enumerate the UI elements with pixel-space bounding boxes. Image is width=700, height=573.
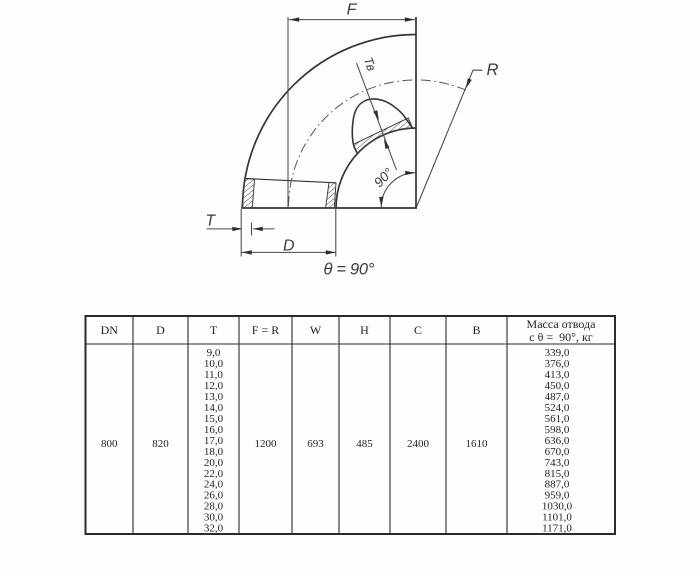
svg-text:T: T: [206, 213, 217, 230]
svg-text:D: D: [283, 238, 295, 255]
svg-text:1610: 1610: [466, 438, 489, 450]
svg-text:800: 800: [101, 438, 118, 450]
svg-text:θ = 90°: θ = 90°: [324, 261, 375, 279]
svg-text:C: C: [414, 323, 422, 337]
svg-text:485: 485: [356, 438, 373, 450]
svg-text:693: 693: [307, 438, 324, 450]
svg-text:2400: 2400: [407, 438, 430, 450]
svg-text:D: D: [156, 323, 165, 337]
svg-text:820: 820: [152, 438, 169, 450]
svg-text:F = R: F = R: [252, 323, 279, 337]
svg-text:Масса отвода: Масса отвода: [527, 317, 597, 331]
svg-text:DN: DN: [101, 323, 119, 337]
svg-text:1200: 1200: [255, 438, 278, 450]
svg-text:B: B: [472, 323, 480, 337]
svg-text:W: W: [310, 323, 322, 337]
svg-text:1171,0: 1171,0: [542, 523, 572, 535]
svg-text:с θ = 90°, кг: с θ = 90°, кг: [529, 330, 592, 344]
svg-text:F: F: [347, 2, 358, 19]
svg-text:32,0: 32,0: [204, 523, 224, 535]
svg-text:H: H: [360, 323, 369, 337]
svg-text:T: T: [210, 323, 218, 337]
svg-text:R: R: [487, 61, 499, 79]
